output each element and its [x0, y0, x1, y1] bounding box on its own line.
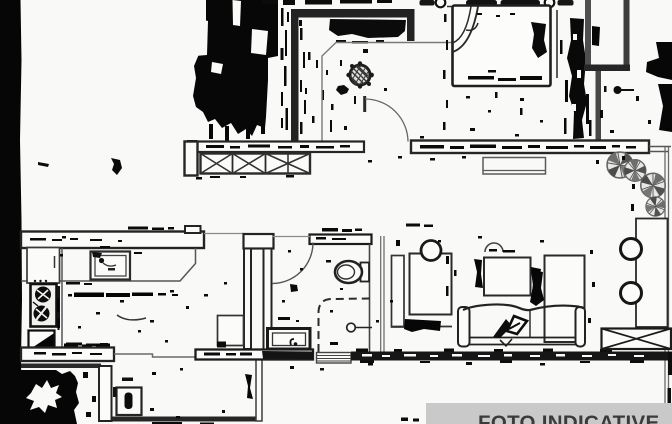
- svg-text:FOTO INDICATIVE: FOTO INDICATIVE: [478, 412, 659, 424]
